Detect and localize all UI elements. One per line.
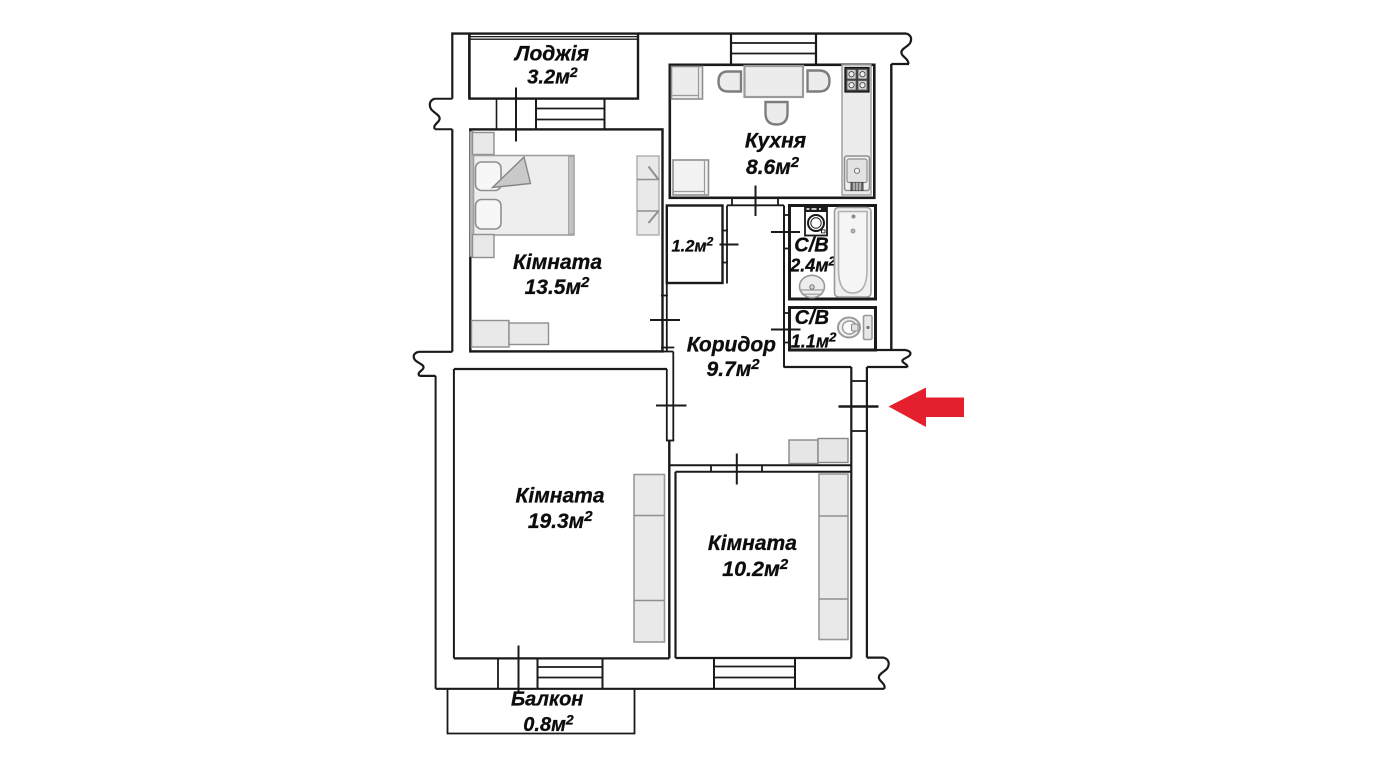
svg-text:2.4м2: 2.4м2 [789, 254, 836, 276]
svg-text:0.8м2: 0.8м2 [523, 712, 574, 737]
svg-text:С/В: С/В [795, 307, 829, 329]
svg-text:Балкон: Балкон [511, 689, 583, 711]
svg-text:19.3м2: 19.3м2 [528, 508, 593, 533]
svg-text:Кімната: Кімната [516, 484, 605, 507]
svg-text:Коридор: Коридор [687, 334, 776, 357]
svg-text:Кухня: Кухня [745, 130, 806, 153]
svg-text:10.2м2: 10.2м2 [722, 556, 789, 581]
svg-text:Кімната: Кімната [708, 532, 797, 555]
svg-text:Лоджія: Лоджія [513, 43, 589, 66]
svg-text:Кімната: Кімната [513, 251, 602, 274]
svg-text:9.7м2: 9.7м2 [707, 356, 761, 381]
svg-text:1.2м2: 1.2м2 [671, 235, 713, 256]
svg-text:8.6м2: 8.6м2 [746, 154, 800, 179]
svg-text:1.1м2: 1.1м2 [791, 329, 837, 351]
svg-text:13.5м2: 13.5м2 [525, 274, 590, 299]
svg-text:С/В: С/В [794, 234, 828, 256]
